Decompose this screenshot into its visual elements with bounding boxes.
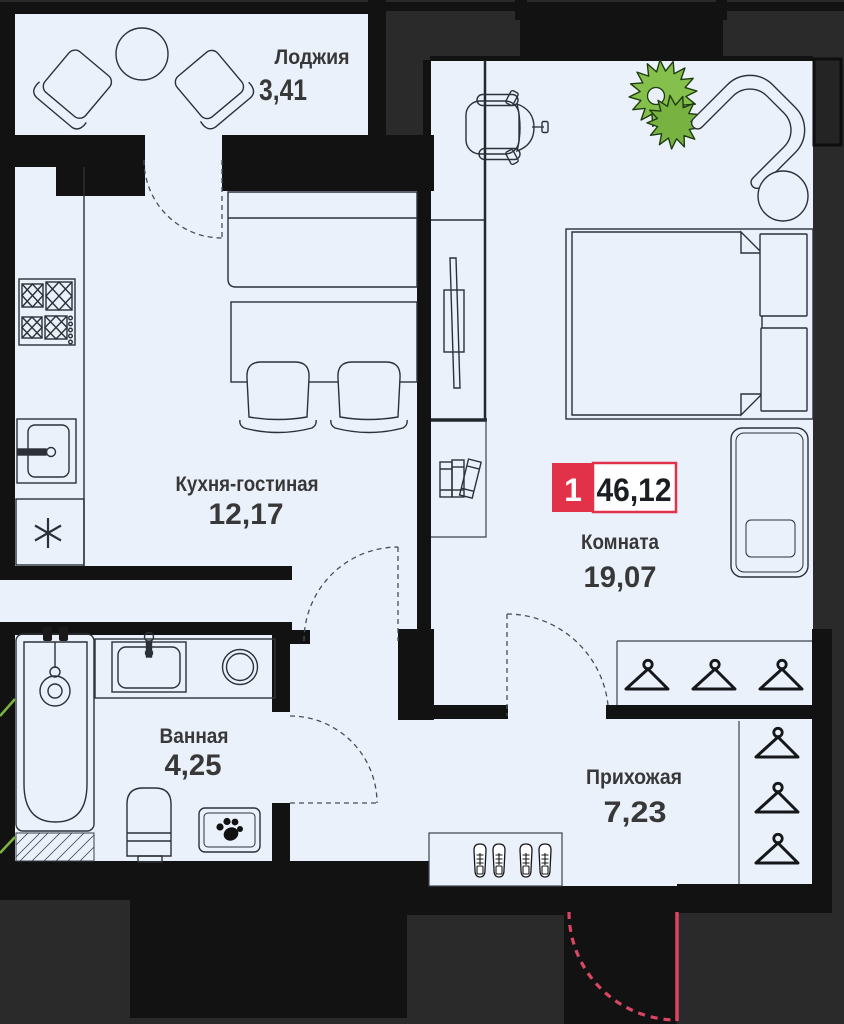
svg-text:3,41: 3,41 <box>259 74 307 107</box>
svg-text:Ванная: Ванная <box>160 725 229 748</box>
svg-text:Комната: Комната <box>581 531 659 554</box>
svg-text:4,25: 4,25 <box>165 749 222 782</box>
svg-text:46,12: 46,12 <box>597 472 672 508</box>
svg-text:12,17: 12,17 <box>209 498 284 531</box>
svg-text:Кухня-гостиная: Кухня-гостиная <box>176 473 319 496</box>
svg-text:Прихожая: Прихожая <box>586 766 682 789</box>
svg-text:7,23: 7,23 <box>604 796 667 829</box>
svg-text:1: 1 <box>564 472 582 508</box>
svg-text:Лоджия: Лоджия <box>275 46 350 69</box>
svg-text:19,07: 19,07 <box>584 561 657 594</box>
